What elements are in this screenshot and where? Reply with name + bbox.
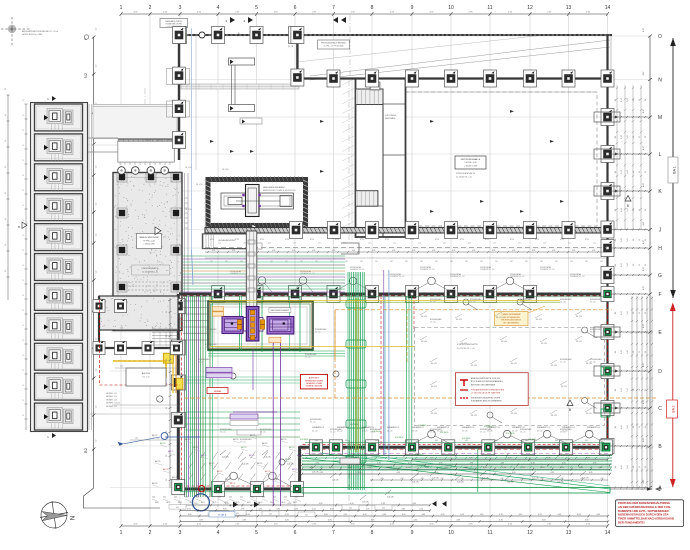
svg-text:UG -1,50: UG -1,50 [143, 377, 150, 379]
svg-text:4,95: 4,95 [232, 250, 235, 252]
svg-text:4,95: 4,95 [470, 463, 474, 465]
svg-text:2,7: 2,7 [23, 219, 25, 221]
svg-text:2,0: 2,0 [633, 171, 635, 173]
svg-text:3,6: 3,6 [645, 99, 647, 101]
svg-text:2,25 4,95: 2,25 4,95 [362, 502, 369, 504]
svg-text:3,5: 3,5 [5, 192, 7, 195]
svg-text:2,0: 2,0 [633, 312, 635, 314]
svg-text:MASCHINENFUNDAMENT: MASCHINENFUNDAMENT [263, 186, 286, 189]
svg-text:2,47: 2,47 [480, 261, 483, 263]
svg-text:BE 2,25: BE 2,25 [160, 443, 166, 445]
svg-text:4,95: 4,95 [460, 514, 464, 516]
svg-text:BE 2,25: BE 2,25 [152, 435, 158, 437]
svg-text:2,47: 2,47 [510, 261, 513, 263]
svg-text:2,0: 2,0 [633, 99, 635, 101]
svg-text:BE-12: BE-12 [213, 502, 217, 504]
svg-text:1,25: 1,25 [343, 243, 346, 245]
svg-text:BE-12: BE-12 [167, 502, 171, 504]
svg-text:BE 2,25: BE 2,25 [265, 471, 271, 473]
svg-text:5,0: 5,0 [96, 440, 98, 443]
svg-text:BE-12: BE-12 [293, 502, 297, 504]
svg-text:14: 14 [605, 5, 611, 11]
svg-text:2,5: 2,5 [166, 479, 168, 481]
svg-text:2,7: 2,7 [23, 384, 25, 386]
svg-text:F60: F60 [315, 440, 318, 442]
svg-text:5,47: 5,47 [627, 263, 629, 266]
svg-text:BE 2,25: BE 2,25 [241, 447, 247, 449]
svg-text:BA 2: BA 2 [672, 405, 676, 412]
svg-text:4,50: 4,50 [273, 497, 276, 499]
svg-text:UK -1,20: UK -1,20 [501, 341, 507, 343]
svg-text:2,25 4,95: 2,25 4,95 [557, 482, 564, 484]
svg-text:1,25: 1,25 [418, 243, 421, 245]
svg-text:4,95: 4,95 [241, 508, 245, 510]
svg-text:UK -1,20: UK -1,20 [586, 413, 592, 415]
svg-text:1,47: 1,47 [621, 465, 623, 468]
svg-text:4,95: 4,95 [380, 478, 383, 480]
svg-text:2,7: 2,7 [23, 234, 25, 236]
svg-text:4,95: 4,95 [425, 467, 429, 469]
svg-text:1: 1 [120, 530, 123, 536]
svg-text:LT. DIN 18014 ALLE 2M² MASCHEN: LT. DIN 18014 ALLE 2M² MASCHEN [471, 392, 501, 395]
svg-text:4,95: 4,95 [382, 514, 386, 516]
svg-text:10: 10 [448, 5, 454, 11]
svg-text:4,87: 4,87 [643, 480, 645, 484]
svg-text:VERBAU: VERBAU [214, 390, 222, 393]
svg-text:UK -1,20: UK -1,20 [461, 343, 467, 345]
svg-text:F60: F60 [465, 440, 468, 442]
svg-text:UK -1,20: UK -1,20 [576, 341, 582, 343]
svg-text:4,95: 4,95 [520, 478, 523, 480]
svg-text:14: 14 [605, 530, 611, 536]
svg-text:5,47: 5,47 [627, 208, 629, 211]
svg-text:2,7: 2,7 [23, 354, 25, 356]
svg-text:3,5: 3,5 [5, 166, 7, 169]
svg-text:4,95: 4,95 [223, 508, 227, 510]
svg-text:2,47: 2,47 [450, 261, 453, 263]
svg-text:4,95: 4,95 [492, 250, 495, 252]
svg-text:2,5: 2,5 [166, 383, 168, 385]
svg-text:4,95: 4,95 [483, 467, 487, 469]
svg-text:3,5: 3,5 [5, 114, 7, 117]
svg-text:BE 2,25: BE 2,25 [262, 443, 268, 445]
svg-text:4,95: 4,95 [512, 250, 515, 252]
svg-text:BE 2,25: BE 2,25 [193, 447, 199, 449]
svg-text:4,95: 4,95 [499, 519, 503, 521]
svg-text:2,0: 2,0 [633, 209, 635, 211]
svg-text:3,5: 3,5 [5, 88, 7, 91]
svg-text:6: 6 [294, 5, 297, 11]
svg-text:F60: F60 [345, 440, 348, 442]
svg-text:OK +2,50: OK +2,50 [222, 169, 229, 171]
svg-text:UK -1,50: UK -1,50 [537, 431, 543, 433]
svg-text:BE 2,25: BE 2,25 [281, 439, 287, 441]
svg-text:UK -1,20: UK -1,20 [560, 361, 566, 363]
svg-text:1,25: 1,25 [593, 243, 596, 245]
svg-text:B: B [569, 408, 571, 412]
svg-text:3,6: 3,6 [645, 426, 647, 428]
svg-text:FUNDAMENT, ANSCHLUSSFAHNEN: FUNDAMENT, ANSCHLUSSFAHNEN [471, 400, 502, 403]
svg-text:OK +2,50: OK +2,50 [185, 209, 192, 211]
svg-text:9: 9 [411, 530, 414, 536]
svg-text:STB-BODENPLATTE: STB-BODENPLATTE [141, 267, 159, 270]
svg-text:SICHERN / UMLEGEN: SICHERN / UMLEGEN [306, 386, 323, 388]
svg-text:4,95: 4,95 [560, 467, 564, 469]
svg-text:GOK 393,80: GOK 393,80 [395, 437, 404, 439]
svg-text:3,6: 3,6 [645, 171, 647, 173]
svg-text:4,95: 4,95 [558, 514, 562, 516]
svg-text:4,95: 4,95 [592, 250, 595, 252]
svg-text:3,5: 3,5 [5, 244, 7, 247]
svg-text:D= 25CM, UK + -20: D= 25CM, UK + -20 [456, 177, 472, 179]
svg-text:1,25: 1,25 [218, 243, 221, 245]
svg-text:GRUNDFL. 12,5: GRUNDFL. 12,5 [106, 403, 117, 405]
svg-text:2,47: 2,47 [570, 261, 573, 263]
svg-text:2,47: 2,47 [375, 261, 378, 263]
svg-text:0,4: 0,4 [615, 239, 617, 241]
svg-text:UK -1,20: UK -1,20 [586, 363, 592, 365]
svg-text:BE-12: BE-12 [247, 502, 251, 504]
svg-text:1,25: 1,25 [568, 243, 571, 245]
svg-text:GRUNDFL. 12,5: GRUNDFL. 12,5 [106, 406, 117, 408]
svg-text:UK -1,20: UK -1,20 [590, 361, 596, 363]
svg-text:5,47: 5,47 [627, 388, 629, 391]
svg-text:2,7: 2,7 [23, 324, 25, 326]
svg-text:UK -1,20: UK -1,20 [205, 331, 211, 333]
svg-text:4,95: 4,95 [285, 514, 289, 516]
svg-text:2,47: 2,47 [585, 261, 588, 263]
svg-text:UK -1,20: UK -1,20 [551, 415, 557, 417]
svg-text:UK -1,20: UK -1,20 [430, 431, 436, 433]
svg-text:GRUNDFL. 12,5: GRUNDFL. 12,5 [106, 396, 117, 398]
svg-text:4,95: 4,95 [396, 472, 400, 474]
svg-text:4,95: 4,95 [445, 467, 449, 469]
svg-text:4,87: 4,87 [643, 324, 645, 328]
svg-text:BE 2,25: BE 2,25 [250, 435, 256, 437]
svg-text:3,6: 3,6 [645, 312, 647, 314]
svg-text:5,0: 5,0 [96, 338, 98, 341]
svg-text:BE-12: BE-12 [270, 502, 274, 504]
svg-text:4,95: 4,95 [406, 467, 410, 469]
svg-text:BE 2,25: BE 2,25 [172, 477, 178, 479]
svg-text:4,95: 4,95 [421, 514, 425, 516]
svg-text:1,2: 1,2 [639, 466, 641, 468]
svg-text:13: 13 [566, 530, 572, 536]
svg-text:B: B [627, 204, 629, 208]
svg-text:12: 12 [527, 5, 533, 11]
svg-text:UK -1,50: UK -1,50 [512, 431, 518, 433]
svg-text:5,47: 5,47 [627, 135, 629, 138]
svg-text:4,95: 4,95 [538, 514, 542, 516]
svg-text:4,95: 4,95 [212, 250, 215, 252]
svg-text:4,50: 4,50 [262, 497, 265, 499]
svg-text:2,7: 2,7 [23, 129, 25, 131]
svg-text:UK -1,20: UK -1,20 [511, 413, 517, 415]
svg-text:ST 25: ST 25 [435, 239, 439, 241]
svg-text:1,25: 1,25 [543, 243, 546, 245]
svg-text:3: 3 [179, 5, 182, 11]
svg-text:7: 7 [332, 5, 335, 11]
svg-text:4,95: 4,95 [332, 250, 335, 252]
svg-text:4,50: 4,50 [349, 507, 352, 509]
svg-text:4,87: 4,87 [643, 146, 645, 150]
svg-text:M: M [658, 115, 662, 121]
svg-text:3,6: 3,6 [645, 351, 647, 353]
svg-text:4,95: 4,95 [522, 467, 526, 469]
svg-text:2,25 4,95: 2,25 4,95 [507, 482, 514, 484]
svg-text:4,95: 4,95 [242, 519, 246, 521]
svg-text:UK -1,20: UK -1,20 [310, 421, 316, 423]
svg-text:4,95: 4,95 [531, 463, 535, 465]
svg-text:UK -1,20: UK -1,20 [421, 341, 427, 343]
svg-text:4,95: 4,95 [350, 503, 354, 505]
svg-text:2,47: 2,47 [465, 261, 468, 263]
svg-text:12,5: 12,5 [120, 328, 123, 330]
svg-text:3,6: 3,6 [645, 264, 647, 266]
svg-text:5,0: 5,0 [96, 166, 98, 169]
svg-text:0,4: 0,4 [615, 389, 617, 391]
svg-text:4,95: 4,95 [512, 472, 516, 474]
svg-text:F60: F60 [405, 440, 408, 442]
svg-text:5,47: 5,47 [627, 465, 629, 468]
svg-text:OK +2,50: OK +2,50 [185, 167, 192, 169]
svg-text:4,95: 4,95 [500, 478, 503, 480]
svg-text:2,25 4,95: 2,25 4,95 [457, 482, 464, 484]
svg-text:UK -1,20: UK -1,20 [220, 431, 226, 433]
svg-text:UK -1,20: UK -1,20 [240, 441, 246, 443]
svg-text:5,0: 5,0 [96, 406, 98, 409]
svg-text:2,7: 2,7 [23, 189, 25, 191]
svg-text:4,50: 4,50 [196, 497, 199, 499]
svg-text:2,47: 2,47 [405, 261, 408, 263]
svg-text:7: 7 [332, 530, 335, 536]
svg-text:BE-12: BE-12 [236, 502, 240, 504]
svg-text:C: C [658, 406, 662, 412]
svg-text:BODENAUSTAUSCH DURCH DEN STA-: BODENAUSTAUSCH DURCH DEN STA- [618, 513, 669, 517]
svg-text:DAMENTE UND EVTL. NOTWENDIGER: DAMENTE UND EVTL. NOTWENDIGER [618, 509, 669, 513]
svg-text:4,95: 4,95 [550, 472, 554, 474]
svg-text:4,95: 4,95 [432, 250, 435, 252]
svg-text:N2: N2 [83, 72, 88, 78]
svg-text:BE 2,25: BE 2,25 [230, 483, 236, 485]
svg-text:2,25 4,95: 2,25 4,95 [412, 482, 419, 484]
svg-text:4,95: 4,95 [452, 250, 455, 252]
svg-text:UK -1,50: UK -1,50 [487, 431, 493, 433]
svg-text:2,25 4,95: 2,25 4,95 [312, 472, 319, 474]
svg-text:1,47: 1,47 [621, 238, 623, 241]
svg-text:4,95: 4,95 [542, 519, 546, 521]
svg-text:2,47: 2,47 [600, 261, 603, 263]
svg-text:4,95: 4,95 [392, 250, 395, 252]
svg-text:OBERKANTE FERTIG-: OBERKANTE FERTIG- [165, 20, 183, 23]
svg-text:BE-12: BE-12 [155, 502, 159, 504]
svg-text:4,95: 4,95 [456, 519, 460, 521]
svg-text:4,95: 4,95 [560, 478, 563, 480]
svg-text:8: 8 [371, 530, 374, 536]
svg-text:4,95: 4,95 [441, 514, 445, 516]
svg-text:UK -1,20: UK -1,20 [520, 431, 526, 433]
svg-text:4,87: 4,87 [643, 267, 645, 271]
svg-text:5,47: 5,47 [627, 350, 629, 353]
svg-text:2,47: 2,47 [540, 261, 543, 263]
svg-text:0,4: 0,4 [615, 264, 617, 266]
svg-text:UK -1,50: UK -1,50 [562, 431, 568, 433]
svg-text:4,95: 4,95 [469, 457, 473, 459]
svg-text:UK -1,20: UK -1,20 [520, 301, 526, 303]
svg-text:4,95: 4,95 [412, 250, 415, 252]
svg-text:GOK 393,80: GOK 393,80 [418, 425, 427, 427]
svg-text:GRUNDFL. 12,5: GRUNDFL. 12,5 [106, 399, 117, 401]
svg-text:TIKER UNMITTELBAR NACH ERDAUSH: TIKER UNMITTELBAR NACH ERDAUSHUB [618, 517, 674, 521]
svg-text:2,7: 2,7 [23, 144, 25, 146]
svg-text:G: G [658, 273, 662, 279]
svg-text:OK FFB +-0,00: OK FFB +-0,00 [464, 162, 476, 164]
svg-text:4,50: 4,50 [229, 497, 232, 499]
svg-text:UK -1,20: UK -1,20 [198, 361, 204, 363]
svg-text:1,25: 1,25 [243, 243, 246, 245]
svg-text:5,0: 5,0 [96, 65, 98, 68]
svg-text:4,95: 4,95 [508, 457, 512, 459]
svg-text:2,25 4,95: 2,25 4,95 [222, 457, 229, 459]
svg-text:4,95: 4,95 [276, 508, 280, 510]
svg-text:UK -1,20: UK -1,20 [421, 316, 427, 318]
svg-text:2,47: 2,47 [420, 261, 423, 263]
svg-text:11: 11 [487, 5, 492, 11]
svg-text:1,47: 1,47 [621, 263, 623, 266]
svg-text:12,5: 12,5 [117, 403, 120, 405]
svg-text:1,47: 1,47 [621, 135, 623, 138]
svg-text:1,47: 1,47 [621, 311, 623, 314]
svg-text:4,87: 4,87 [643, 222, 645, 226]
svg-text:12,5: 12,5 [135, 438, 138, 440]
svg-text:1,47: 1,47 [621, 350, 623, 353]
svg-text:ST 25: ST 25 [410, 239, 414, 241]
svg-text:= 394,60 m üNN: = 394,60 m üNN [464, 165, 478, 167]
svg-text:4,95: 4,95 [200, 519, 204, 521]
svg-text:3,5: 3,5 [5, 270, 7, 273]
svg-text:12,5: 12,5 [120, 366, 123, 368]
svg-text:LKW-ANLIEFERUNG: LKW-ANLIEFERUNG [218, 239, 236, 242]
svg-text:GOK 393,80: GOK 393,80 [372, 431, 381, 433]
svg-text:UK -1,20: UK -1,20 [560, 301, 566, 303]
svg-text:UK -1,20: UK -1,20 [456, 319, 462, 321]
svg-text:4,50: 4,50 [185, 497, 188, 499]
svg-text:4,50: 4,50 [236, 513, 239, 515]
svg-text:1,2: 1,2 [639, 171, 641, 173]
svg-text:UK -1,50: UK -1,50 [387, 431, 393, 433]
svg-text:2,47: 2,47 [390, 261, 393, 263]
svg-text:4,50: 4,50 [284, 497, 287, 499]
svg-text:4,95: 4,95 [402, 514, 406, 516]
svg-text:0,4: 0,4 [615, 136, 617, 138]
svg-text:N: N [71, 516, 77, 520]
svg-text:BE-12: BE-12 [190, 502, 194, 504]
svg-text:= 394,60 üNN: = 394,60 üNN [143, 244, 155, 246]
svg-text:OK +2,50: OK +2,50 [196, 184, 203, 186]
svg-text:1,25: 1,25 [318, 243, 321, 245]
svg-text:4,95: 4,95 [366, 508, 370, 510]
svg-text:2,47: 2,47 [345, 261, 348, 263]
svg-text:UK -1,20: UK -1,20 [496, 317, 502, 319]
svg-text:2,7: 2,7 [23, 279, 25, 281]
svg-text:0,4: 0,4 [615, 466, 617, 468]
svg-text:3,5: 3,5 [5, 218, 7, 221]
svg-text:2,25 4,95: 2,25 4,95 [332, 480, 339, 482]
svg-text:GRUNDFL. 12,5: GRUNDFL. 12,5 [106, 393, 117, 395]
svg-text:0,4: 0,4 [615, 351, 617, 353]
svg-text:ST 25: ST 25 [335, 239, 339, 241]
svg-text:4,95: 4,95 [408, 463, 412, 465]
svg-text:2,0: 2,0 [633, 466, 635, 468]
svg-text:2,47: 2,47 [495, 261, 498, 263]
svg-text:4,50: 4,50 [305, 514, 308, 516]
svg-text:GOK 393,80: GOK 393,80 [350, 424, 359, 426]
svg-text:UK -1,20: UK -1,20 [536, 319, 542, 321]
svg-text:4,95: 4,95 [480, 514, 484, 516]
svg-text:F60: F60 [495, 440, 498, 442]
svg-text:4,95: 4,95 [358, 472, 362, 474]
svg-text:5,0: 5,0 [96, 28, 98, 31]
svg-text:1,25: 1,25 [293, 243, 296, 245]
svg-text:4,95: 4,95 [377, 463, 381, 465]
svg-text:1,2: 1,2 [639, 239, 641, 241]
svg-text:1,47: 1,47 [621, 170, 623, 173]
svg-text:4,50: 4,50 [295, 497, 298, 499]
svg-text:4,95: 4,95 [519, 514, 523, 516]
svg-text:GOK 393,80: GOK 393,80 [484, 426, 493, 428]
svg-text:3: 3 [179, 530, 182, 536]
svg-text:4,95: 4,95 [577, 514, 581, 516]
svg-text:4,95: 4,95 [352, 250, 355, 252]
svg-text:4,95: 4,95 [205, 508, 209, 510]
svg-text:4,95: 4,95 [420, 478, 423, 480]
svg-text:DETAIL A: DETAIL A [218, 514, 227, 517]
svg-text:4: 4 [217, 5, 220, 11]
svg-text:0,4: 0,4 [615, 171, 617, 173]
svg-text:2,7: 2,7 [23, 414, 25, 416]
svg-text:5,0: 5,0 [96, 203, 98, 206]
svg-text:4,95: 4,95 [312, 508, 316, 510]
svg-text:2,7: 2,7 [23, 99, 25, 101]
svg-text:BLOCKGAS UND NIEDERSPANNUNG: BLOCKGAS UND NIEDERSPANNUNG [471, 380, 503, 383]
svg-text:ST 25: ST 25 [385, 239, 389, 241]
svg-text:4,95: 4,95 [419, 508, 423, 510]
svg-text:4,95: 4,95 [572, 250, 575, 252]
svg-text:4,95: 4,95 [316, 463, 320, 465]
svg-text:AM PUNKT DER ÜBERGABE: AM PUNKT DER ÜBERGABE [471, 383, 496, 386]
svg-text:UK -1,20: UK -1,20 [480, 431, 486, 433]
svg-text:O: O [658, 34, 662, 40]
svg-text:F: F [658, 292, 661, 298]
svg-text:GOK 393,80: GOK 393,80 [462, 438, 471, 440]
svg-text:ST 25: ST 25 [310, 239, 314, 241]
svg-text:1,47: 1,47 [621, 208, 623, 211]
svg-text:4,87: 4,87 [643, 438, 645, 442]
svg-text:4,95: 4,95 [585, 519, 589, 521]
svg-text:4,95: 4,95 [600, 478, 603, 480]
svg-text:2,7: 2,7 [23, 309, 25, 311]
svg-text:4,50: 4,50 [163, 497, 166, 499]
svg-text:UK -1,20: UK -1,20 [430, 321, 436, 323]
svg-text:B2: B2 [83, 447, 88, 453]
svg-text:2,7: 2,7 [23, 174, 25, 176]
svg-text:FUNDAMENTERDER (VERDRAHTUNG): FUNDAMENTERDER (VERDRAHTUNG) [471, 389, 505, 392]
svg-text:4,87: 4,87 [643, 72, 645, 76]
svg-text:UK -1,50: UK -1,50 [337, 431, 343, 433]
svg-text:F60: F60 [375, 440, 378, 442]
svg-text:D= 25CM, UK + -20: D= 25CM, UK + -20 [457, 348, 475, 350]
svg-text:HOCH 394,62 m ü.NN: HOCH 394,62 m ü.NN [22, 34, 42, 36]
